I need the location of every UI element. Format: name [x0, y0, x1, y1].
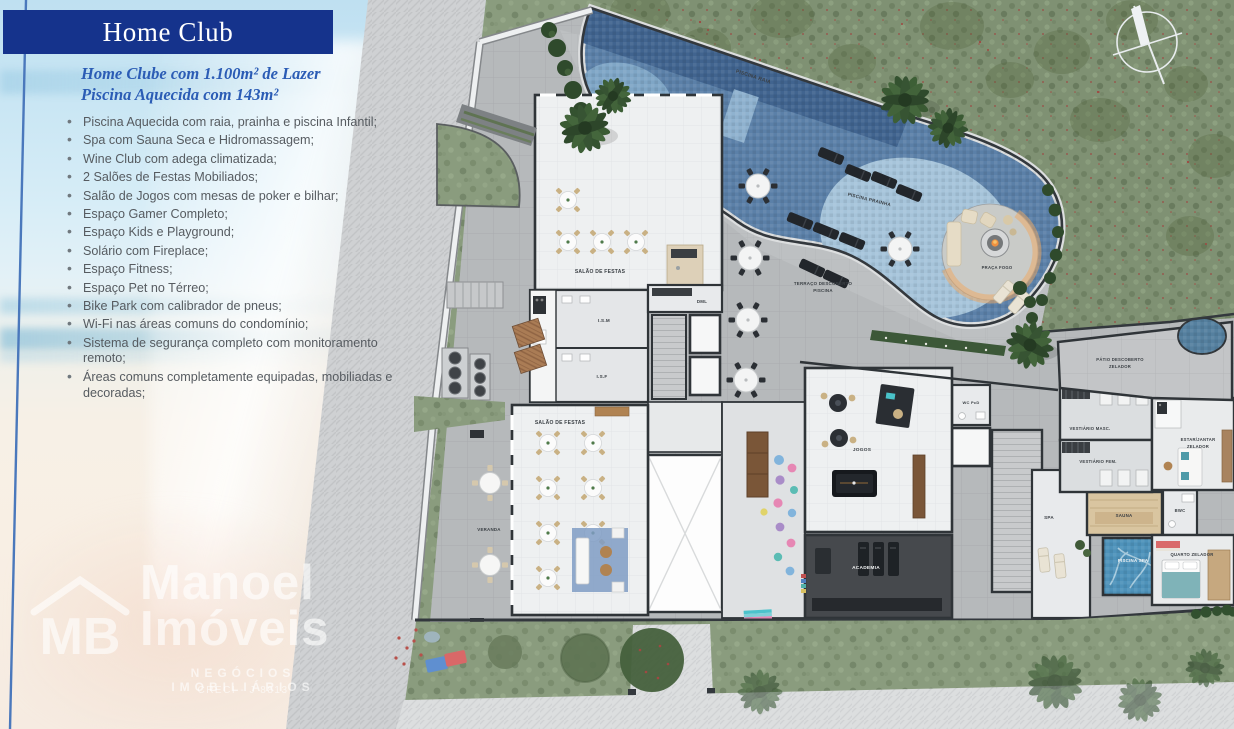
- gym: ACADEMIA: [801, 535, 952, 618]
- svg-text:ZELADOR: ZELADOR: [1187, 444, 1209, 449]
- list-item: Espaço Kids e Playground;: [64, 225, 400, 241]
- svg-text:PISCINA: PISCINA: [813, 288, 833, 293]
- list-item: Spa com Sauna Seca e Hidromassagem;: [64, 133, 400, 149]
- svg-text:PÁTIO DESCOBERTO: PÁTIO DESCOBERTO: [1096, 357, 1144, 362]
- play-tower: [747, 432, 768, 497]
- fire-plaza-label: PRAÇA FOGO: [982, 265, 1013, 270]
- svg-text:ESTAR/JANTAR: ESTAR/JANTAR: [1181, 437, 1216, 442]
- wc-female-label: I.S.F: [597, 374, 608, 379]
- elevator: [952, 428, 990, 466]
- list-item: Bike Park com calibrador de pneus;: [64, 299, 400, 315]
- sauna: SAUNA: [1087, 492, 1162, 535]
- elevator: [690, 357, 720, 395]
- games-room: JOGOS: [805, 368, 952, 532]
- caretaker-bedroom: QUARTO ZELADOR: [1152, 535, 1234, 605]
- games-room-label: JOGOS: [853, 447, 872, 453]
- amenities-list: Piscina Aquecida com raia, prainha e pis…: [64, 115, 400, 404]
- home-club-page: PISCINA RAIA PISCINA INFANTIL PISCINA PR…: [0, 0, 1234, 729]
- elevator: [690, 315, 720, 353]
- party-hall-2: SALÃO DE FESTAS: [512, 405, 648, 615]
- sauna-label: SAUNA: [1116, 513, 1133, 518]
- list-item: Solário com Fireplace;: [64, 244, 400, 260]
- spa-label: SPA: [1044, 515, 1054, 520]
- bwc-label: BWC: [1175, 508, 1186, 513]
- spa-pool-label: PISCINA SPA: [1118, 558, 1149, 563]
- svg-text:TERRAÇO DESCOBERTO: TERRAÇO DESCOBERTO: [794, 281, 853, 286]
- intro-text: Home Clube com 1.100m² de Lazer Piscina …: [81, 64, 391, 105]
- plaza-sofa: [947, 222, 961, 266]
- bwc: BWC: [1163, 490, 1197, 535]
- kids-space: [722, 402, 805, 628]
- locker-rooms: VESTIÁRIO MASC. VESTIÁRIO FEM.: [1060, 385, 1152, 492]
- list-item: Piscina Aquecida com raia, prainha e pis…: [64, 115, 400, 131]
- list-item: Espaço Fitness;: [64, 262, 400, 278]
- decorative-blue-line: [10, 0, 26, 729]
- gym-label: ACADEMIA: [852, 565, 880, 571]
- list-item: Espaço Gamer Completo;: [64, 207, 400, 223]
- garden-south: [394, 605, 1234, 729]
- list-item: Wi-Fi nas áreas comuns do condomínio;: [64, 317, 400, 333]
- locker-male-label: VESTIÁRIO MASC.: [1070, 426, 1111, 431]
- caretaker-living: ESTAR/JANTAR ZELADOR: [1152, 398, 1234, 490]
- intro-line-1: Home Clube com 1.100m² de Lazer: [81, 64, 391, 85]
- list-item: Áreas comuns completamente equipadas, mo…: [64, 370, 400, 402]
- circulation-core: DML: [648, 285, 722, 612]
- gamer-corner: [875, 384, 914, 428]
- list-item: Wine Club com adega climatizada;: [64, 152, 400, 168]
- list-item: Salão de Jogos com mesas de poker e bilh…: [64, 189, 400, 205]
- equipment-units: [442, 348, 490, 400]
- title-banner: Home Club: [3, 10, 333, 54]
- svg-text:ZELADOR: ZELADOR: [1109, 364, 1131, 369]
- list-item: Sistema de segurança completo com monito…: [64, 336, 400, 368]
- accessible-wc-label: WC PcD: [962, 400, 979, 405]
- wc-male-label: I.S.M: [598, 318, 610, 323]
- caretaker-bedroom-label: QUARTO ZELADOR: [1171, 552, 1214, 557]
- dml-label: DML: [697, 299, 707, 304]
- service-rooms: I.S.M I.S.F: [512, 290, 648, 402]
- page-title: Home Club: [103, 17, 234, 48]
- covered-roof: [648, 455, 722, 612]
- list-item: 2 Salões de Festas Mobiliados;: [64, 170, 400, 186]
- locker-female-label: VESTIÁRIO FEM.: [1079, 459, 1116, 464]
- party-hall-1-label: SALÃO DE FESTAS: [575, 268, 626, 275]
- intro-line-2: Piscina Aquecida com 143m²: [81, 85, 391, 106]
- list-item: Espaço Pet no Térreo;: [64, 281, 400, 297]
- stairs: [652, 315, 686, 399]
- party-hall-2-label: SALÃO DE FESTAS: [535, 419, 586, 426]
- veranda-label: VERANDA: [477, 527, 501, 532]
